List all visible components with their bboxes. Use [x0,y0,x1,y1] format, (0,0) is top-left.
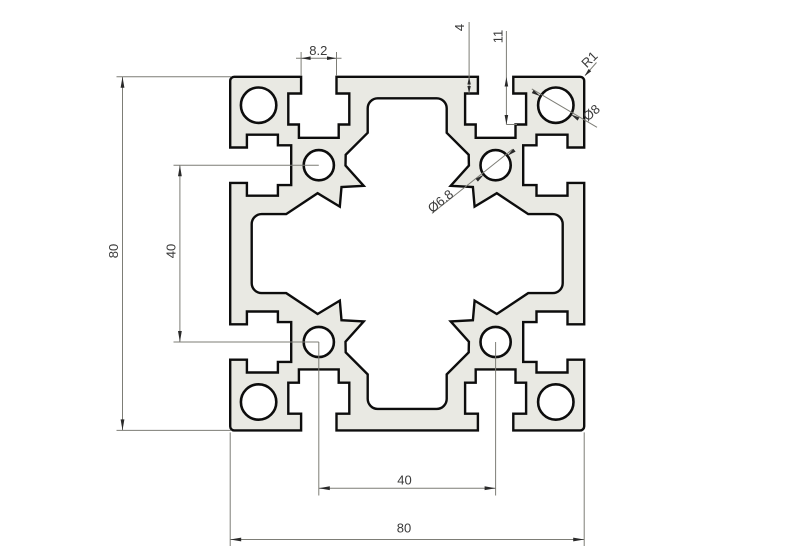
svg-text:80: 80 [106,244,121,258]
svg-text:4: 4 [452,24,467,31]
svg-text:80: 80 [397,521,411,536]
svg-text:40: 40 [163,244,178,258]
svg-text:40: 40 [397,473,411,488]
svg-text:8.2: 8.2 [309,43,327,58]
svg-text:11: 11 [490,30,505,44]
